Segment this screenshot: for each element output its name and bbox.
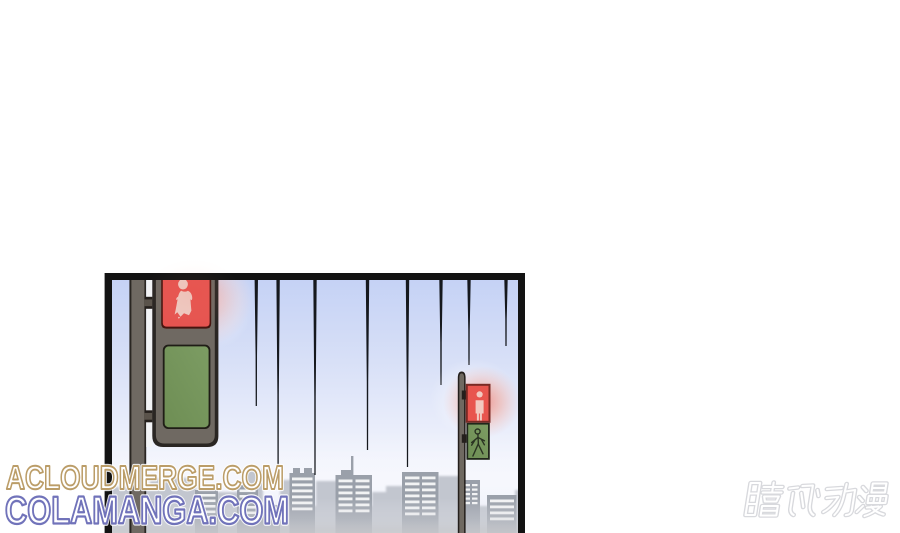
svg-text:COLAMANGA.COM: COLAMANGA.COM — [5, 489, 289, 532]
